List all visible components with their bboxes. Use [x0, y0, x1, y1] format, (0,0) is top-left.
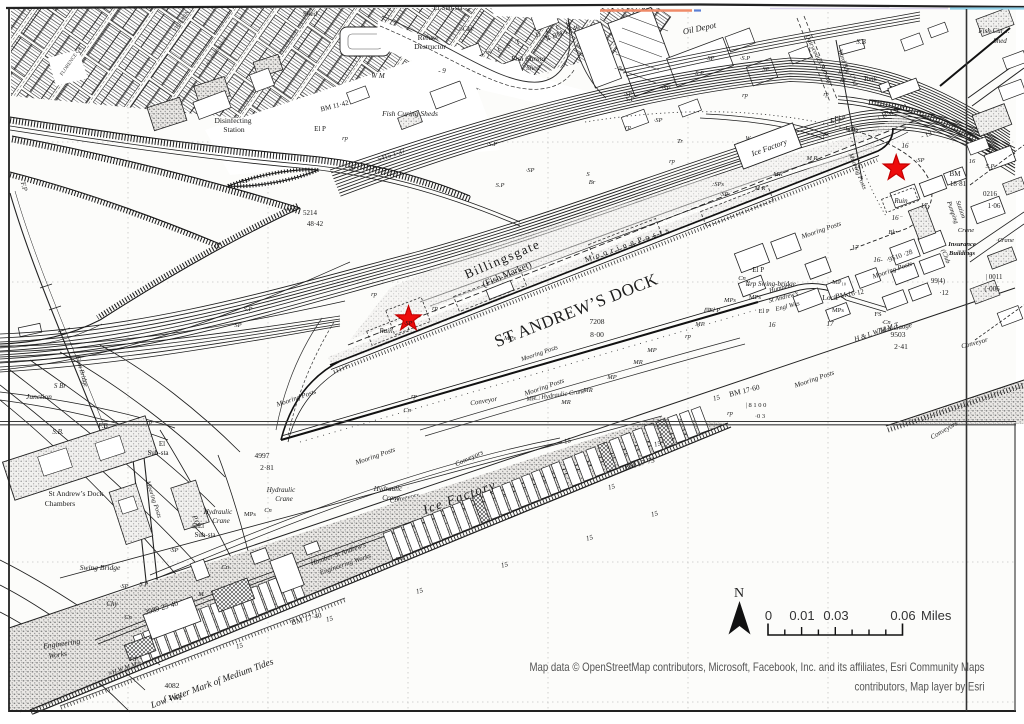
svg-text:S.P: S.P: [241, 178, 250, 185]
svg-text:rp: rp: [371, 291, 378, 298]
svg-text:El: El: [159, 440, 165, 448]
svg-text:Br: Br: [589, 179, 596, 186]
svg-text:Shed: Shed: [993, 37, 1007, 45]
svg-text:El P: El P: [314, 125, 326, 133]
svg-text:Bk•: Bk•: [888, 229, 897, 236]
svg-text:SP: SP: [234, 322, 241, 329]
svg-text:Hydraulic: Hydraulic: [266, 486, 296, 494]
svg-text:N: N: [734, 586, 744, 601]
svg-text:99|4): 99|4): [931, 277, 946, 285]
svg-text:Disinfecting: Disinfecting: [214, 116, 251, 125]
svg-text:Cn: Cn: [264, 507, 272, 514]
svg-text:0.03: 0.03: [823, 608, 848, 623]
svg-text:MR: MR: [560, 399, 570, 406]
svg-text:MPs: MPs: [503, 335, 516, 342]
svg-text:·0 3: ·0 3: [755, 413, 765, 420]
svg-text:rp: rp: [742, 92, 749, 99]
svg-text:4997: 4997: [255, 451, 270, 460]
svg-text:rp: rp: [685, 333, 692, 340]
svg-text:Tr: Tr: [677, 138, 683, 145]
svg-text:S.P: S.P: [244, 306, 253, 313]
svg-text:SP: SP: [762, 66, 769, 73]
svg-text:·SP: ·SP: [720, 191, 729, 198]
svg-text:4082: 4082: [165, 681, 180, 690]
svg-text:FS: FS: [874, 311, 882, 318]
svg-text:Cn: Cn: [124, 614, 132, 621]
svg-text:Shed: Shed: [303, 9, 318, 18]
svg-text:Cn·: Cn·: [403, 407, 413, 414]
svg-text:0.06: 0.06: [890, 608, 915, 623]
svg-text:- 9: - 9: [438, 67, 446, 75]
svg-text:rps: rps: [396, 555, 405, 562]
svg-text:16: 16: [969, 158, 976, 165]
svg-text:S.P: S.P: [986, 163, 995, 170]
svg-text:·SP: ·SP: [526, 167, 535, 174]
svg-text:Sub-sta: Sub-sta: [148, 449, 170, 457]
svg-text:Chy: Chy: [106, 600, 118, 608]
svg-text:○Cky: ○Cky: [458, 25, 474, 33]
svg-text:Shed: Shed: [526, 64, 540, 72]
svg-text:Miles: Miles: [921, 608, 952, 623]
svg-text:rp: rp: [432, 305, 439, 312]
svg-text:rp: rp: [342, 135, 349, 142]
svg-text:pk: pk: [822, 132, 829, 138]
svg-text:·S P: ·S P: [138, 581, 149, 588]
svg-text:El P: El P: [834, 115, 845, 122]
svg-text:S.P.: S.P.: [695, 70, 705, 77]
svg-text:16: 16: [769, 321, 777, 329]
svg-text:Hydraulic: Hydraulic: [373, 485, 403, 493]
svg-text:Buildings: Buildings: [948, 250, 975, 257]
svg-text:Ruin: Ruin: [378, 327, 393, 335]
svg-text:BM: BM: [950, 170, 962, 178]
svg-text:Junction: Junction: [26, 392, 52, 401]
svg-text:F.P: F.P: [129, 656, 139, 663]
svg-text::SPs: :SPs: [712, 181, 724, 188]
svg-text:8·00: 8·00: [590, 330, 604, 339]
svg-text:Crane: Crane: [382, 494, 400, 502]
svg-text:1·06: 1·06: [988, 202, 1001, 210]
svg-text:rp: rp: [823, 92, 828, 98]
svg-text:Hydraulic: Hydraulic: [203, 508, 233, 516]
svg-text:Map data © OpenStreetMap contr: Map data © OpenStreetMap contributors, M…: [530, 660, 985, 674]
svg-text:(·006: (·006: [984, 285, 1000, 293]
svg-text:7208: 7208: [590, 317, 605, 326]
svg-text:Swing Bridge: Swing Bridge: [80, 563, 121, 572]
svg-text:rp: rp: [669, 158, 676, 165]
svg-text:⊟El P: ⊟El P: [704, 307, 721, 314]
svg-text:17: 17: [827, 320, 835, 328]
svg-text:Crane: Crane: [212, 517, 230, 525]
svg-text:( 1·61: ( 1·61: [164, 693, 182, 702]
svg-text:MP: MP: [606, 374, 616, 381]
svg-text:rp·: rp·: [146, 419, 154, 426]
svg-text:·SP: ·SP: [654, 117, 663, 124]
svg-text:MPs: MPs: [244, 511, 256, 518]
svg-text:rp: rp: [411, 393, 418, 400]
svg-text:Insurance: Insurance: [947, 241, 976, 248]
svg-text:Refuse: Refuse: [418, 33, 439, 42]
svg-text:L.B: L.B: [844, 125, 854, 132]
svg-text:·SP: ·SP: [662, 85, 671, 92]
svg-text:·El P: ·El P: [750, 266, 764, 274]
svg-text:Crane: Crane: [958, 227, 974, 234]
svg-text:MP: MP: [694, 321, 704, 328]
svg-text:·SP: ·SP: [120, 583, 129, 590]
svg-text:MR: MR: [772, 171, 782, 178]
svg-text:Cn: Cn: [738, 275, 746, 282]
svg-text:Chambers: Chambers: [45, 499, 75, 508]
svg-text:rp: rp: [349, 165, 356, 172]
svg-text:·SP: ·SP: [916, 157, 925, 164]
svg-text:El P: El P: [758, 308, 769, 315]
svg-text:Sub-sta: Sub-sta: [195, 531, 217, 539]
svg-text:2·81: 2·81: [260, 463, 274, 472]
svg-text:·SP: ·SP: [706, 55, 715, 62]
svg-text:Fish Curing: Fish Curing: [510, 55, 546, 63]
svg-text:S.B: S.B: [856, 38, 866, 46]
svg-text:16: 16: [902, 142, 910, 150]
svg-text:St Andrew’s Dock: St Andrew’s Dock: [49, 489, 104, 498]
svg-text:S.P: S.P: [496, 182, 505, 189]
svg-text:18·81: 18·81: [950, 180, 967, 188]
svg-text:Tank: Tank: [863, 75, 877, 83]
svg-text:- 9: - 9: [614, 65, 622, 72]
svg-text:MPs: MPs: [723, 297, 736, 304]
svg-text:Br: Br: [840, 78, 847, 84]
svg-text:0216: 0216: [983, 190, 998, 198]
svg-text:5214: 5214: [303, 209, 318, 217]
svg-text:16-: 16-: [873, 256, 883, 264]
svg-text:Fish Cur…: Fish Cur…: [977, 27, 1009, 35]
svg-text:·SP: ·SP: [170, 547, 179, 554]
svg-text:MR: MR: [582, 387, 592, 394]
svg-text:·SP: ·SP: [404, 320, 413, 327]
svg-text:·S.P: ·S.P: [487, 141, 498, 148]
svg-text:·S.P: ·S.P: [740, 55, 751, 62]
svg-text:MP: MP: [646, 347, 656, 354]
svg-text:M R: M R: [753, 185, 765, 192]
svg-text:Destructor: Destructor: [414, 42, 446, 51]
svg-text:| 0011: | 0011: [986, 273, 1003, 281]
svg-text:M: M: [197, 591, 204, 598]
svg-text:Fish Curing Sheds: Fish Curing Sheds: [381, 109, 438, 118]
svg-text:F.B: F.B: [97, 422, 108, 430]
svg-text:17: 17: [852, 244, 860, 252]
svg-text:Ruin: Ruin: [893, 197, 908, 205]
svg-text:·12: ·12: [939, 289, 949, 297]
svg-text:2·41: 2·41: [894, 342, 908, 351]
svg-text:0.01: 0.01: [789, 608, 814, 623]
svg-text:S Br: S Br: [54, 382, 67, 390]
svg-text:S.B.: S.B.: [52, 428, 64, 436]
svg-text:W M: W M: [371, 72, 386, 80]
svg-text:rp: rp: [727, 410, 734, 417]
svg-text:contributors, Map layer by Esr: contributors, Map layer by Esri: [855, 680, 985, 694]
svg-text:·MP₁₀: ·MP₁₀: [830, 279, 846, 286]
svg-text:0: 0: [765, 608, 772, 623]
svg-text:MR: MR: [632, 359, 642, 366]
svg-text:rp: rp: [625, 124, 632, 131]
svg-text:El Sub-sta: El Sub-sta: [434, 4, 464, 12]
svg-text:Cn·: Cn·: [221, 564, 231, 571]
svg-text:MPs: MPs: [832, 307, 844, 314]
svg-text:17·: 17·: [921, 202, 930, 210]
svg-text:16⁻: 16⁻: [892, 214, 904, 222]
svg-text:48·42: 48·42: [307, 220, 324, 228]
svg-text:| 8 1 0 0: | 8 1 0 0: [746, 402, 767, 409]
svg-text:MPs: MPs: [749, 294, 761, 301]
svg-text:S.P: S.P: [626, 96, 635, 103]
svg-text:M R: M R: [805, 155, 817, 162]
svg-text:·Crane: ·Crane: [996, 237, 1014, 244]
svg-text:Station: Station: [223, 125, 245, 134]
svg-text:Crane: Crane: [275, 495, 293, 503]
